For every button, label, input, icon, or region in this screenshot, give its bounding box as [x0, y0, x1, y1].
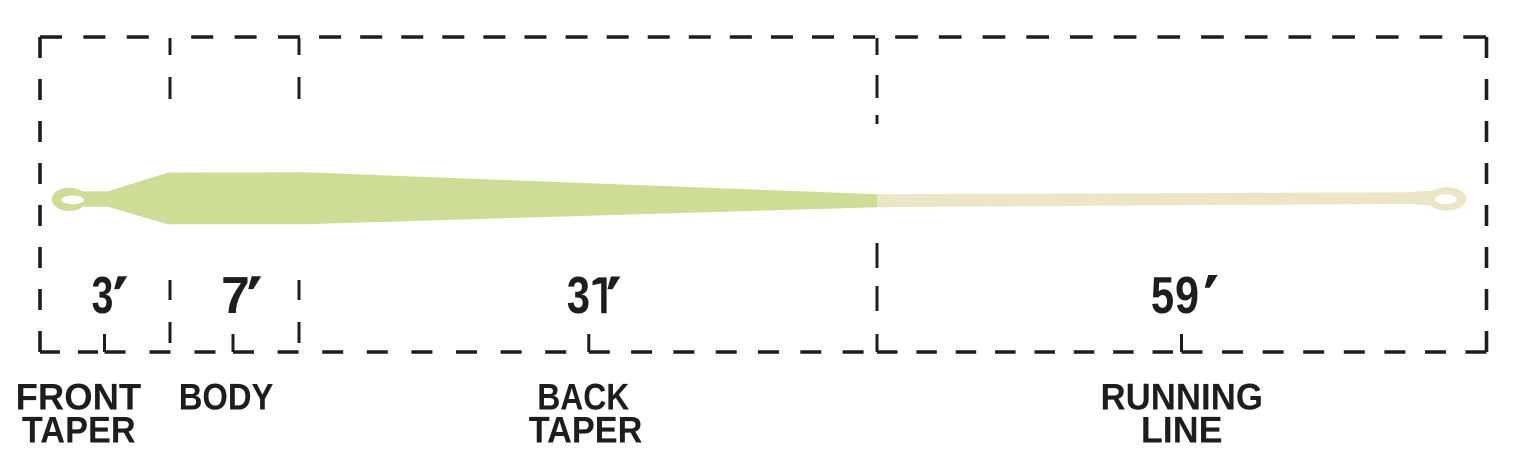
svg-text:3: 3 — [567, 267, 590, 324]
svg-text:3: 3 — [92, 267, 114, 324]
svg-text:5: 5 — [1151, 267, 1174, 324]
svg-text:9: 9 — [1175, 268, 1199, 325]
svg-text:BODY: BODY — [179, 377, 274, 418]
svg-text:LINE: LINE — [1141, 409, 1223, 451]
svg-text:TAPER: TAPER — [22, 410, 136, 451]
svg-text:7: 7 — [221, 266, 250, 324]
svg-text:TAPER: TAPER — [529, 410, 643, 451]
